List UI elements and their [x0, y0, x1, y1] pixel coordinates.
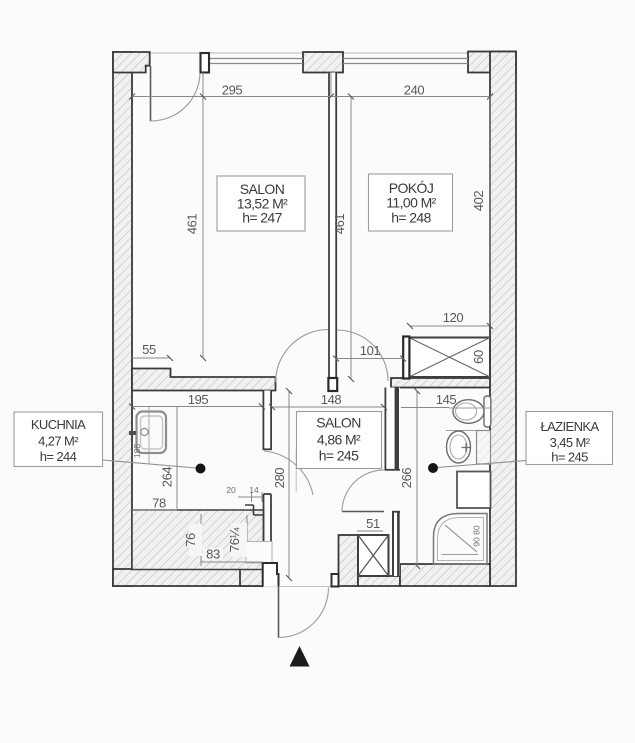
svg-text:402: 402: [471, 191, 486, 212]
svg-text:h= 247: h= 247: [242, 210, 282, 226]
svg-text:461: 461: [185, 214, 200, 235]
svg-text:78: 78: [152, 496, 166, 511]
svg-text:240: 240: [404, 83, 425, 98]
svg-text:14: 14: [249, 485, 259, 495]
svg-text:55: 55: [142, 342, 156, 357]
svg-text:101: 101: [360, 343, 381, 358]
svg-text:195: 195: [188, 392, 209, 407]
svg-text:ŁAZIENKA: ŁAZIENKA: [540, 419, 599, 434]
svg-text:145: 145: [436, 392, 457, 407]
svg-text:76¼: 76¼: [227, 527, 242, 552]
svg-text:3,45 M²: 3,45 M²: [550, 435, 591, 450]
svg-text:90 80: 90 80: [472, 525, 482, 547]
svg-text:KUCHNIA: KUCHNIA: [31, 417, 86, 432]
svg-text:h= 245: h= 245: [551, 450, 588, 465]
svg-text:188: 188: [132, 444, 142, 458]
svg-text:280: 280: [272, 468, 287, 489]
svg-text:4,27 M²: 4,27 M²: [38, 434, 79, 449]
svg-text:264: 264: [160, 467, 175, 488]
svg-text:83: 83: [206, 547, 220, 562]
svg-text:20: 20: [226, 485, 236, 495]
svg-text:266: 266: [399, 468, 414, 489]
svg-text:60: 60: [471, 350, 486, 364]
svg-text:76: 76: [183, 533, 198, 547]
svg-text:51: 51: [366, 516, 380, 531]
svg-text:295: 295: [222, 83, 243, 98]
svg-text:h= 245: h= 245: [319, 448, 359, 464]
svg-text:h= 248: h= 248: [391, 210, 431, 226]
svg-text:SALON: SALON: [316, 415, 360, 431]
svg-text:h= 244: h= 244: [40, 449, 77, 464]
svg-text:148: 148: [321, 392, 342, 407]
svg-text:120: 120: [443, 310, 464, 325]
svg-text:11,00 M²: 11,00 M²: [386, 195, 436, 211]
svg-text:461: 461: [332, 214, 347, 235]
svg-text:4,86 M²: 4,86 M²: [317, 432, 361, 448]
